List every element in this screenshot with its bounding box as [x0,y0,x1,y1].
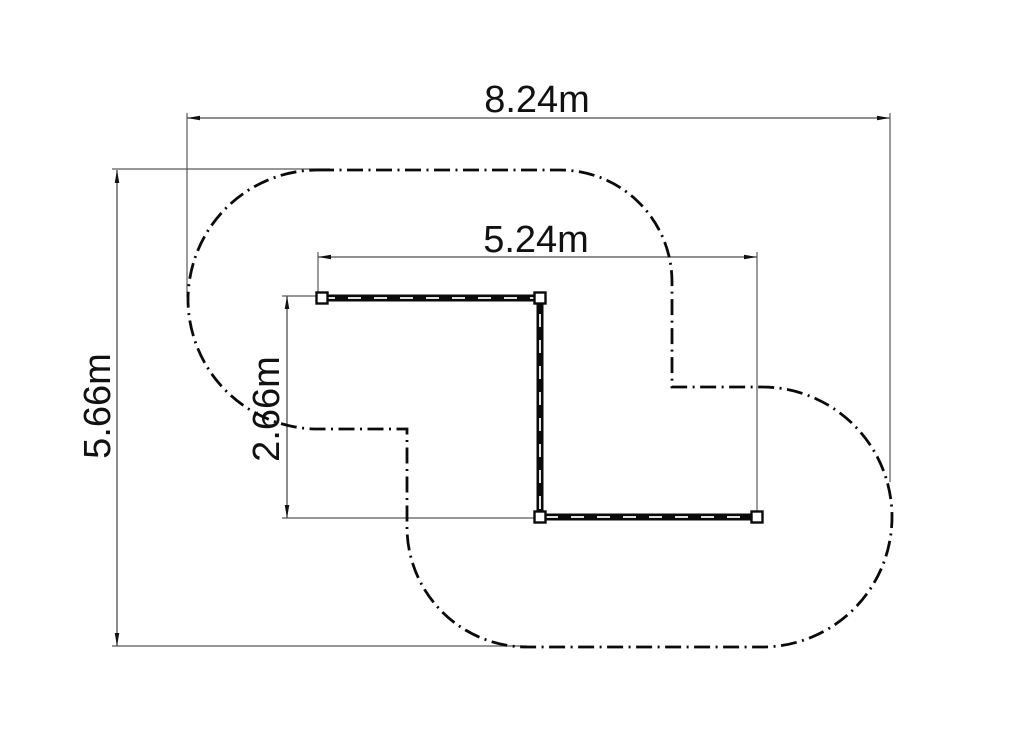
arrowhead-up-icon [115,170,120,183]
arrowhead-left-icon [318,255,331,260]
track-joint-node [535,293,546,304]
track-joint-node [535,512,546,523]
solid-track [317,293,763,523]
dimension-label-inner-width: 5.24m [483,219,589,261]
arrowhead-right-icon [877,116,890,121]
arrowhead-down-icon [115,633,120,646]
dimension-label-overall-height: 5.66m [77,353,119,459]
technical-drawing-canvas: 8.24m 5.66m 5.24m 2.66m [0,0,1024,733]
dimension-overall-height: 5.66m [77,169,527,646]
track-plan-drawing: 8.24m 5.66m 5.24m 2.66m [0,0,1024,733]
track-joint-node [317,293,328,304]
arrowhead-up-icon [285,296,290,309]
dimension-label-overall-width: 8.24m [484,79,590,121]
track-segment-path [322,298,757,517]
dimension-inner-height: 2.66m [246,296,534,518]
track-joint-node [752,512,763,523]
dimension-label-inner-height: 2.66m [246,356,288,462]
arrowhead-right-icon [744,255,757,260]
arrowhead-down-icon [285,505,290,518]
arrowhead-left-icon [187,116,200,121]
